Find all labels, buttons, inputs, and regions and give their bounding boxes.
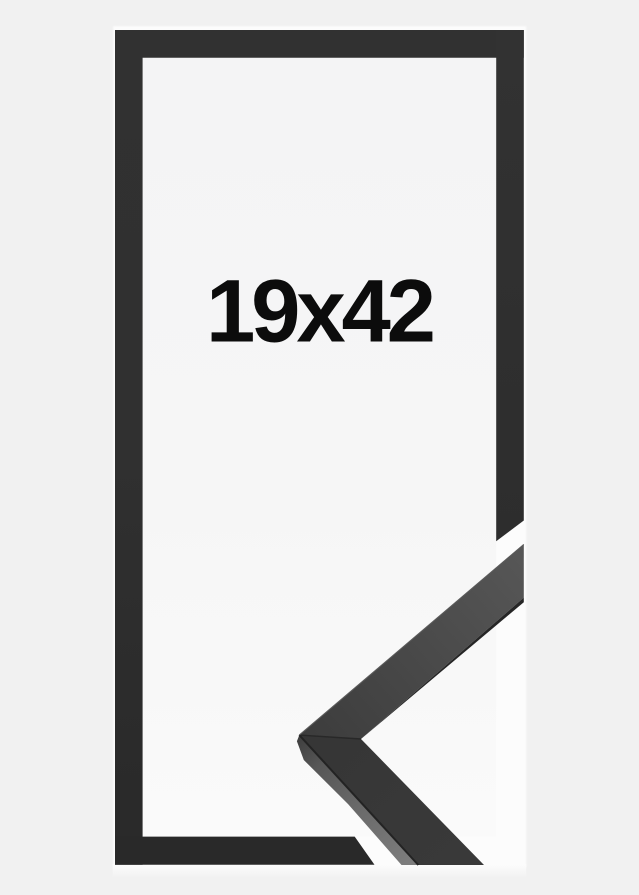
- svg-text:19x42: 19x42: [206, 262, 436, 361]
